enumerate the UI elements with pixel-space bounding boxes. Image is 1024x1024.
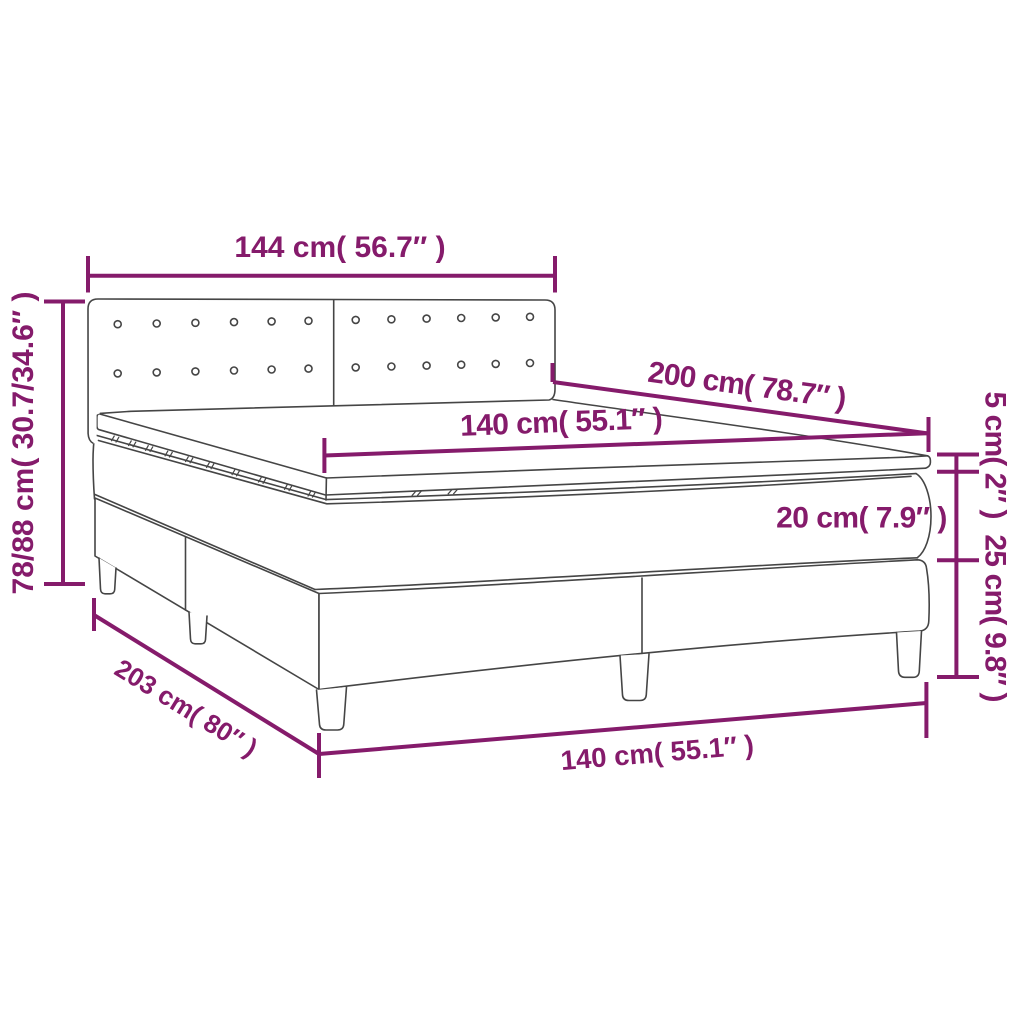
svg-text:140 cm( 55.1″ ): 140 cm( 55.1″ ): [559, 729, 754, 776]
svg-text:5 cm( 2″ ): 5 cm( 2″ ): [979, 391, 1012, 518]
svg-text:25 cm( 9.8″ ): 25 cm( 9.8″ ): [979, 534, 1012, 701]
svg-text:203 cm( 80″ ): 203 cm( 80″ ): [110, 653, 263, 763]
svg-text:78/88 cm( 30.7/34.6″ ): 78/88 cm( 30.7/34.6″ ): [7, 292, 40, 595]
svg-text:200 cm( 78.7″ ): 200 cm( 78.7″ ): [646, 356, 848, 416]
svg-text:144 cm( 56.7″ ): 144 cm( 56.7″ ): [234, 231, 445, 264]
svg-text:20 cm( 7.9″ ): 20 cm( 7.9″ ): [776, 502, 947, 535]
